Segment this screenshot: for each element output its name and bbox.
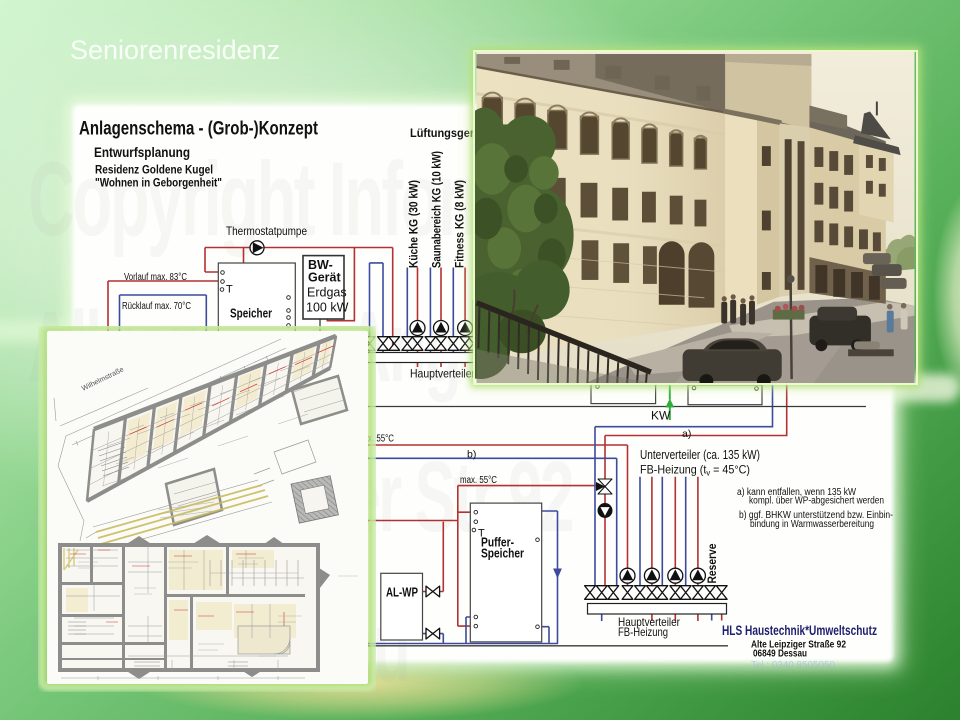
- svg-text:Saunabereich KG (10 kW): Saunabereich KG (10 kW): [430, 151, 444, 268]
- svg-text:"Wohnen in Geborgenheit": "Wohnen in Geborgenheit": [95, 176, 222, 190]
- svg-text:AL-WP: AL-WP: [386, 585, 418, 600]
- svg-text:100 kW: 100 kW: [306, 301, 349, 315]
- svg-text:Rücklauf max. 70°C: Rücklauf max. 70°C: [122, 301, 191, 312]
- svg-text:Residenz Goldene Kugel: Residenz Goldene Kugel: [95, 163, 213, 177]
- svg-text:Thermostatpumpe: Thermostatpumpe: [226, 224, 307, 238]
- svg-text:Speicher: Speicher: [481, 546, 524, 561]
- svg-text:Tel.: 0340 8505050: Tel.: 0340 8505050: [751, 660, 835, 671]
- svg-text:Unterverteiler (ca. 135 kW): Unterverteiler (ca. 135 kW): [640, 448, 760, 462]
- svg-text:Küche KG (30 kW): Küche KG (30 kW): [407, 180, 421, 268]
- svg-text:Erdgas: Erdgas: [307, 286, 347, 300]
- svg-text:Hauptverteiler: Hauptverteiler: [410, 367, 475, 381]
- svg-text:Anlagenschema - (Grob-)Konzept: Anlagenschema - (Grob-)Konzept: [79, 119, 319, 140]
- svg-text:T: T: [226, 284, 233, 296]
- svg-text:Fitness KG (8 kW): Fitness KG (8 kW): [453, 180, 467, 268]
- svg-text:Vorlauf max. 83°C: Vorlauf max. 83°C: [124, 272, 187, 283]
- svg-text:Gerät: Gerät: [308, 271, 341, 285]
- svg-text:Reserve: Reserve: [705, 543, 719, 583]
- svg-text:Entwurfsplanung: Entwurfsplanung: [94, 144, 190, 160]
- svg-text:FB-Heizung: FB-Heizung: [618, 625, 668, 639]
- svg-text:FB-Heizung (tv = 45°C): FB-Heizung (tv = 45°C): [640, 463, 750, 478]
- svg-text:Speicher: Speicher: [230, 306, 272, 321]
- svg-text:b): b): [467, 449, 476, 461]
- svg-text:T: T: [478, 528, 485, 540]
- svg-text:a): a): [682, 428, 691, 440]
- svg-text:kompl. über WP-abgesichert wer: kompl. über WP-abgesichert werden: [749, 496, 884, 507]
- svg-text:bindung in Warmwasserbereitung: bindung in Warmwasserbereitung: [750, 519, 874, 530]
- svg-text:HLS Haustechnik*Umweltschutz: HLS Haustechnik*Umweltschutz: [722, 623, 877, 638]
- svg-text:KW: KW: [651, 409, 671, 423]
- svg-text:06849 Dessau: 06849 Dessau: [753, 648, 807, 660]
- svg-text:max. 55°C: max. 55°C: [460, 475, 497, 486]
